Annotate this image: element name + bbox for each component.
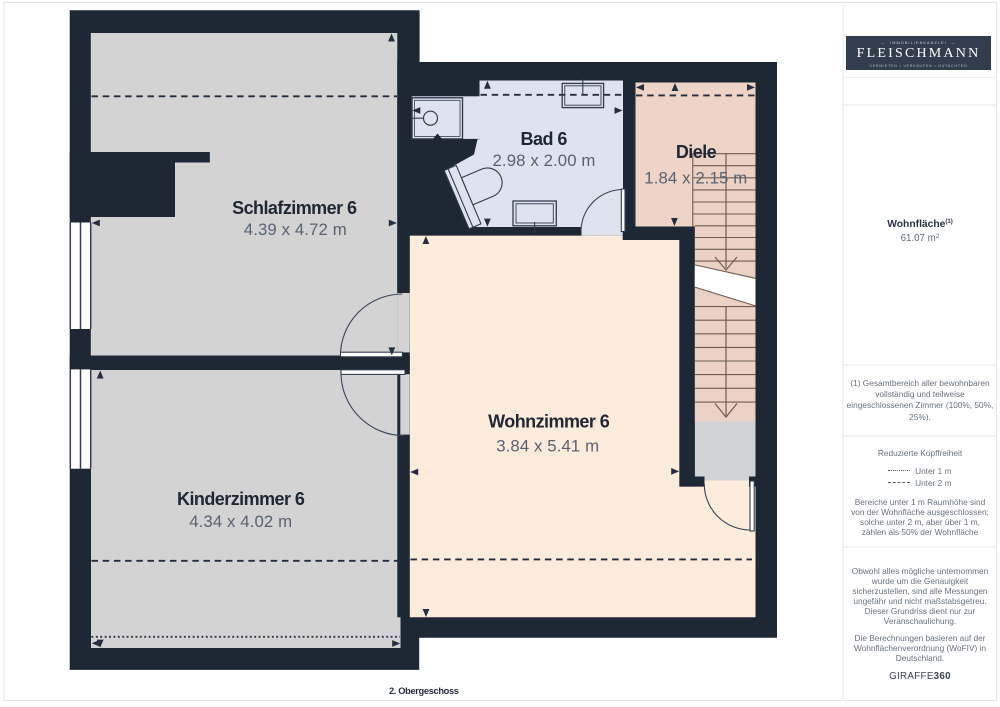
svg-text:Diele: Diele bbox=[676, 142, 717, 162]
svg-text:Schlafzimmer 6: Schlafzimmer 6 bbox=[232, 198, 357, 218]
svg-text:1.84 x 2.15 m: 1.84 x 2.15 m bbox=[644, 169, 747, 188]
svg-text:2.98 x 2.00 m: 2.98 x 2.00 m bbox=[493, 151, 596, 170]
svg-text:3.84 x 5.41 m: 3.84 x 5.41 m bbox=[496, 437, 599, 456]
svg-text:4.39 x 4.72 m: 4.39 x 4.72 m bbox=[244, 220, 347, 239]
svg-text:Bad 6: Bad 6 bbox=[521, 129, 568, 149]
svg-text:Wohnzimmer 6: Wohnzimmer 6 bbox=[488, 412, 610, 432]
svg-text:4.34 x 4.02 m: 4.34 x 4.02 m bbox=[189, 512, 292, 531]
svg-text:Kinderzimmer 6: Kinderzimmer 6 bbox=[177, 489, 305, 509]
svg-text:2. Obergeschoss: 2. Obergeschoss bbox=[389, 686, 459, 696]
